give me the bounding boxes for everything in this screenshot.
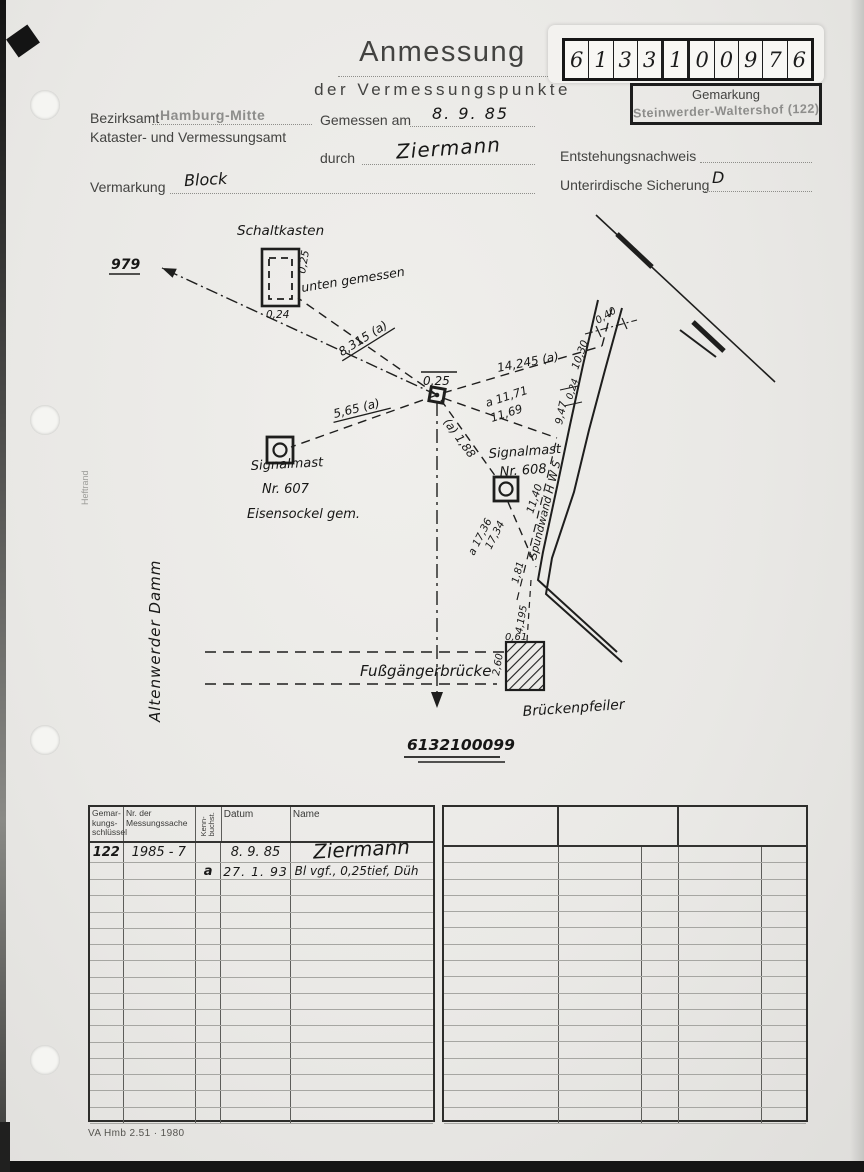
table-empty-cell bbox=[762, 847, 806, 862]
schaltkasten-symbol bbox=[262, 249, 299, 306]
schaltkasten-note: unten gemessen bbox=[300, 264, 406, 295]
table-empty-cell bbox=[291, 1010, 433, 1025]
table-empty-cell bbox=[221, 961, 290, 976]
table-empty-cell bbox=[291, 1043, 433, 1058]
measurement-log-table: Gemar- kungs- schlüssel Nr. der Messungs… bbox=[88, 805, 435, 1122]
table-empty-row bbox=[444, 896, 806, 912]
table-empty-cell bbox=[762, 1091, 806, 1106]
table-empty-row bbox=[90, 994, 433, 1010]
table-empty-row bbox=[90, 929, 433, 945]
table-empty-cell bbox=[90, 1091, 124, 1106]
table-empty-cell bbox=[762, 1010, 806, 1025]
table-empty-cell bbox=[291, 978, 433, 993]
table-empty-cell bbox=[90, 945, 124, 960]
table-empty-cell bbox=[679, 912, 762, 927]
table-empty-cell bbox=[642, 880, 680, 895]
pier-label: Brückenpfeiler bbox=[522, 697, 626, 720]
table-empty-row bbox=[444, 863, 806, 879]
table-empty-cell bbox=[90, 880, 124, 895]
table-empty-row bbox=[444, 1010, 806, 1026]
table-empty-row bbox=[444, 1026, 806, 1042]
empty-rows-left bbox=[90, 880, 433, 1124]
table-empty-cell bbox=[444, 1075, 559, 1090]
table-empty-cell bbox=[762, 896, 806, 911]
table-empty-cell bbox=[642, 1042, 680, 1057]
cell-name: Bl vgf., 0,25tief, Düh bbox=[291, 863, 433, 879]
table-empty-cell bbox=[124, 1043, 196, 1058]
table-empty-cell bbox=[444, 1042, 559, 1057]
col-header-kennbuchst-text: Kenn- buchst. bbox=[200, 812, 217, 836]
table-empty-row bbox=[444, 977, 806, 993]
table-empty-cell bbox=[679, 994, 762, 1009]
table-empty-cell bbox=[221, 896, 290, 911]
table-empty-cell bbox=[196, 1010, 222, 1025]
table-empty-cell bbox=[559, 912, 642, 927]
table-empty-row bbox=[90, 1108, 433, 1124]
table-empty-cell bbox=[90, 978, 124, 993]
table-empty-cell bbox=[444, 1010, 559, 1025]
table-empty-cell bbox=[444, 1059, 559, 1074]
table-empty-cell bbox=[124, 880, 196, 895]
table-empty-cell bbox=[124, 1091, 196, 1106]
table-empty-row bbox=[444, 1108, 806, 1124]
rt-header-cell bbox=[444, 807, 559, 845]
table-empty-row bbox=[90, 880, 433, 896]
table-empty-cell bbox=[444, 1026, 559, 1041]
table-empty-cell bbox=[196, 1043, 222, 1058]
table-empty-cell bbox=[762, 961, 806, 976]
cell-messungssache bbox=[124, 863, 196, 879]
arrow-to-979 bbox=[162, 268, 177, 278]
table-empty-cell bbox=[559, 1010, 642, 1025]
table-empty-row bbox=[90, 1059, 433, 1075]
table-empty-cell bbox=[196, 1059, 222, 1074]
table-empty-cell bbox=[642, 928, 680, 943]
table-empty-cell bbox=[642, 1075, 680, 1090]
table-empty-cell bbox=[124, 929, 196, 944]
table-empty-cell bbox=[90, 1026, 124, 1041]
rt-header-cell bbox=[559, 807, 680, 845]
scanned-survey-form: Anmessung der Vermessungspunkte 6 1 3 3 … bbox=[0, 0, 864, 1172]
cell-name: Ziermann bbox=[290, 835, 433, 861]
table-empty-cell bbox=[90, 961, 124, 976]
table-empty-cell bbox=[196, 945, 222, 960]
table-empty-cell bbox=[196, 1108, 222, 1123]
target-979: 979 bbox=[111, 257, 140, 273]
table-empty-cell bbox=[679, 896, 762, 911]
distance-schaltkasten: 8,315 (a) bbox=[336, 318, 390, 359]
table-row: a 27. 1. 93 Bl vgf., 0,25tief, Düh bbox=[90, 863, 433, 880]
point-height-label: 0,25 bbox=[423, 374, 450, 388]
table-empty-cell bbox=[90, 929, 124, 944]
table-empty-cell bbox=[762, 928, 806, 943]
table-empty-cell bbox=[221, 1091, 290, 1106]
table-empty-cell bbox=[221, 1075, 290, 1090]
table-empty-cell bbox=[196, 978, 222, 993]
table-empty-row bbox=[90, 896, 433, 912]
table-empty-cell bbox=[762, 880, 806, 895]
table-empty-cell bbox=[444, 1091, 559, 1106]
table-empty-row bbox=[90, 961, 433, 977]
rt-header-cell bbox=[679, 807, 806, 845]
table-empty-row bbox=[444, 928, 806, 944]
table-empty-cell bbox=[221, 978, 290, 993]
table-empty-row bbox=[444, 1042, 806, 1058]
table-empty-cell bbox=[196, 1091, 222, 1106]
table-empty-cell bbox=[444, 961, 559, 976]
table-empty-row bbox=[90, 1091, 433, 1107]
cell-kennbuchst: a bbox=[196, 863, 222, 879]
table-empty-cell bbox=[221, 1108, 290, 1123]
table-empty-cell bbox=[559, 1091, 642, 1106]
table-empty-cell bbox=[444, 847, 559, 862]
table-empty-cell bbox=[762, 1042, 806, 1057]
table-empty-cell bbox=[559, 928, 642, 943]
table-empty-cell bbox=[124, 978, 196, 993]
table-empty-cell bbox=[642, 1010, 680, 1025]
table-empty-cell bbox=[679, 1059, 762, 1074]
table-empty-cell bbox=[762, 1075, 806, 1090]
bridge-pier-symbol bbox=[506, 642, 544, 690]
table-empty-cell bbox=[221, 1026, 290, 1041]
table-empty-row bbox=[444, 847, 806, 863]
table-empty-cell bbox=[642, 863, 680, 878]
table-empty-cell bbox=[679, 1108, 762, 1123]
table-empty-cell bbox=[762, 1108, 806, 1123]
table-empty-cell bbox=[642, 1026, 680, 1041]
table-empty-row bbox=[90, 978, 433, 994]
table-empty-cell bbox=[221, 1010, 290, 1025]
table-empty-cell bbox=[291, 1075, 433, 1090]
table-empty-cell bbox=[196, 1026, 222, 1041]
mast607-line3: Eisensockel gem. bbox=[247, 507, 360, 522]
form-number: VA Hmb 2.51 · 1980 bbox=[88, 1128, 185, 1139]
table-empty-row bbox=[444, 1091, 806, 1107]
col-header-messungssache: Nr. der Messungssache bbox=[124, 807, 196, 841]
table-empty-cell bbox=[679, 928, 762, 943]
table-empty-cell bbox=[559, 880, 642, 895]
table-empty-cell bbox=[559, 1075, 642, 1090]
table-empty-cell bbox=[762, 1026, 806, 1041]
table-empty-cell bbox=[559, 994, 642, 1009]
table-empty-cell bbox=[196, 913, 222, 928]
empty-rows-right bbox=[444, 847, 806, 1124]
table-empty-cell bbox=[291, 896, 433, 911]
table-empty-cell bbox=[90, 1108, 124, 1123]
col-header-datum: Datum bbox=[222, 807, 291, 841]
table-empty-cell bbox=[762, 912, 806, 927]
table-empty-cell bbox=[124, 1108, 196, 1123]
table-empty-cell bbox=[90, 1075, 124, 1090]
table-empty-cell bbox=[679, 863, 762, 878]
table-empty-cell bbox=[679, 1026, 762, 1041]
table-empty-cell bbox=[642, 994, 680, 1009]
footbridge-label: Fußgängerbrücke bbox=[360, 662, 491, 680]
cell-messungssache: 1985 - 7 bbox=[124, 843, 196, 862]
table-empty-cell bbox=[90, 896, 124, 911]
table-empty-cell bbox=[221, 1059, 290, 1074]
table-empty-row bbox=[444, 945, 806, 961]
table-empty-cell bbox=[291, 1026, 433, 1041]
table-empty-cell bbox=[444, 1108, 559, 1123]
distance-1-88: (a) 1,88 bbox=[441, 416, 479, 461]
table-empty-row bbox=[90, 1026, 433, 1042]
table-empty-cell bbox=[679, 961, 762, 976]
table-empty-cell bbox=[196, 929, 222, 944]
table-empty-row bbox=[444, 880, 806, 896]
table-empty-cell bbox=[559, 1042, 642, 1057]
table-empty-cell bbox=[196, 961, 222, 976]
distance-0-24: 0,24 bbox=[564, 377, 581, 401]
mast608-line2: Nr. 608 bbox=[499, 462, 547, 480]
table-empty-cell bbox=[679, 1075, 762, 1090]
table-empty-cell bbox=[642, 961, 680, 976]
table-empty-cell bbox=[444, 945, 559, 960]
table-empty-cell bbox=[444, 994, 559, 1009]
table-empty-cell bbox=[90, 1010, 124, 1025]
table-empty-cell bbox=[444, 880, 559, 895]
table-empty-cell bbox=[679, 977, 762, 992]
table-empty-row bbox=[444, 961, 806, 977]
table-empty-cell bbox=[291, 1091, 433, 1106]
table-empty-cell bbox=[642, 977, 680, 992]
table-empty-cell bbox=[444, 896, 559, 911]
distance-9-47: 9,47 bbox=[553, 400, 570, 426]
signalmast-608-symbol bbox=[494, 477, 518, 501]
cell-gemarkung bbox=[90, 863, 124, 879]
table-empty-cell bbox=[642, 945, 680, 960]
table-empty-cell bbox=[124, 913, 196, 928]
table-empty-cell bbox=[291, 1059, 433, 1074]
table-empty-cell bbox=[679, 1091, 762, 1106]
table-empty-cell bbox=[642, 1059, 680, 1074]
table-empty-cell bbox=[762, 945, 806, 960]
table-empty-cell bbox=[444, 977, 559, 992]
table-empty-cell bbox=[762, 863, 806, 878]
table-empty-cell bbox=[642, 912, 680, 927]
table-empty-cell bbox=[762, 977, 806, 992]
table-empty-cell bbox=[642, 1091, 680, 1106]
table-empty-cell bbox=[679, 945, 762, 960]
table-empty-cell bbox=[444, 928, 559, 943]
arrow-down bbox=[431, 692, 443, 708]
table-empty-row bbox=[90, 1010, 433, 1026]
table-empty-row bbox=[90, 913, 433, 929]
pier-height: 2,60 bbox=[491, 653, 506, 677]
table-empty-cell bbox=[124, 1059, 196, 1074]
table-empty-cell bbox=[679, 1010, 762, 1025]
table-empty-cell bbox=[291, 929, 433, 944]
table-empty-cell bbox=[196, 994, 222, 1009]
table-empty-cell bbox=[291, 1108, 433, 1123]
table-row: 122 1985 - 7 8. 9. 85 Ziermann bbox=[90, 843, 433, 863]
distance-4-195: 4,195 bbox=[514, 604, 530, 634]
table-empty-cell bbox=[124, 994, 196, 1009]
dam-edge-line bbox=[596, 215, 775, 382]
table-empty-cell bbox=[559, 945, 642, 960]
table-empty-cell bbox=[124, 961, 196, 976]
schaltkasten-width: 0,24 bbox=[266, 309, 289, 321]
table-empty-row bbox=[90, 1075, 433, 1091]
table-empty-row bbox=[444, 912, 806, 928]
table-empty-cell bbox=[642, 847, 680, 862]
table-empty-cell bbox=[291, 913, 433, 928]
table-empty-cell bbox=[90, 994, 124, 1009]
table-empty-cell bbox=[221, 945, 290, 960]
target-number: 6132100099 bbox=[407, 736, 515, 754]
table-empty-cell bbox=[642, 1108, 680, 1123]
table-empty-row bbox=[90, 1043, 433, 1059]
table-empty-cell bbox=[90, 1043, 124, 1058]
table-empty-cell bbox=[291, 945, 433, 960]
table-empty-cell bbox=[196, 880, 222, 895]
table-empty-cell bbox=[762, 994, 806, 1009]
col-header-kennbuchst: Kenn- buchst. bbox=[196, 807, 222, 841]
table-empty-cell bbox=[559, 896, 642, 911]
table-empty-cell bbox=[679, 880, 762, 895]
table-empty-cell bbox=[559, 1059, 642, 1074]
mast607-line2: Nr. 607 bbox=[262, 482, 310, 497]
table-empty-cell bbox=[221, 929, 290, 944]
cell-kennbuchst bbox=[196, 843, 222, 862]
cell-datum: 27. 1. 93 bbox=[221, 863, 290, 879]
table-empty-cell bbox=[291, 880, 433, 895]
secondary-log-table bbox=[442, 805, 808, 1122]
table-empty-cell bbox=[196, 896, 222, 911]
table-empty-row bbox=[444, 994, 806, 1010]
cell-datum: 8. 9. 85 bbox=[221, 843, 290, 862]
table-empty-cell bbox=[124, 896, 196, 911]
table-empty-cell bbox=[444, 863, 559, 878]
table-empty-cell bbox=[559, 1026, 642, 1041]
cell-gemarkung: 122 bbox=[90, 843, 124, 862]
table-empty-cell bbox=[124, 1026, 196, 1041]
table-empty-cell bbox=[679, 1042, 762, 1057]
mast607-line1: Signalmast bbox=[250, 455, 324, 474]
table-empty-cell bbox=[291, 994, 433, 1009]
distance-wall-top: 14,245 (a) bbox=[496, 349, 560, 375]
table-empty-cell bbox=[642, 896, 680, 911]
table-empty-cell bbox=[221, 994, 290, 1009]
table-empty-cell bbox=[124, 945, 196, 960]
table-empty-cell bbox=[124, 1010, 196, 1025]
table-empty-cell bbox=[559, 847, 642, 862]
table-empty-cell bbox=[124, 1075, 196, 1090]
table-empty-cell bbox=[221, 913, 290, 928]
table-empty-cell bbox=[196, 1075, 222, 1090]
table-empty-cell bbox=[444, 912, 559, 927]
table-empty-row bbox=[444, 1059, 806, 1075]
table-empty-cell bbox=[559, 863, 642, 878]
col-header-gemarkung: Gemar- kungs- schlüssel bbox=[90, 807, 124, 841]
table-empty-cell bbox=[291, 961, 433, 976]
table-empty-cell bbox=[90, 1059, 124, 1074]
table-empty-cell bbox=[762, 1059, 806, 1074]
pier-width: 0,61 bbox=[505, 632, 527, 643]
table-empty-row bbox=[90, 945, 433, 961]
table-empty-cell bbox=[559, 977, 642, 992]
table-empty-cell bbox=[221, 1043, 290, 1058]
table-empty-cell bbox=[90, 913, 124, 928]
table-empty-cell bbox=[679, 847, 762, 862]
distance-0-40: 0,40 bbox=[594, 305, 619, 326]
table-empty-cell bbox=[559, 1108, 642, 1123]
table-empty-row bbox=[444, 1075, 806, 1091]
table-empty-cell bbox=[559, 961, 642, 976]
schaltkasten-label: Schaltkasten bbox=[237, 223, 324, 239]
table-empty-cell bbox=[221, 880, 290, 895]
